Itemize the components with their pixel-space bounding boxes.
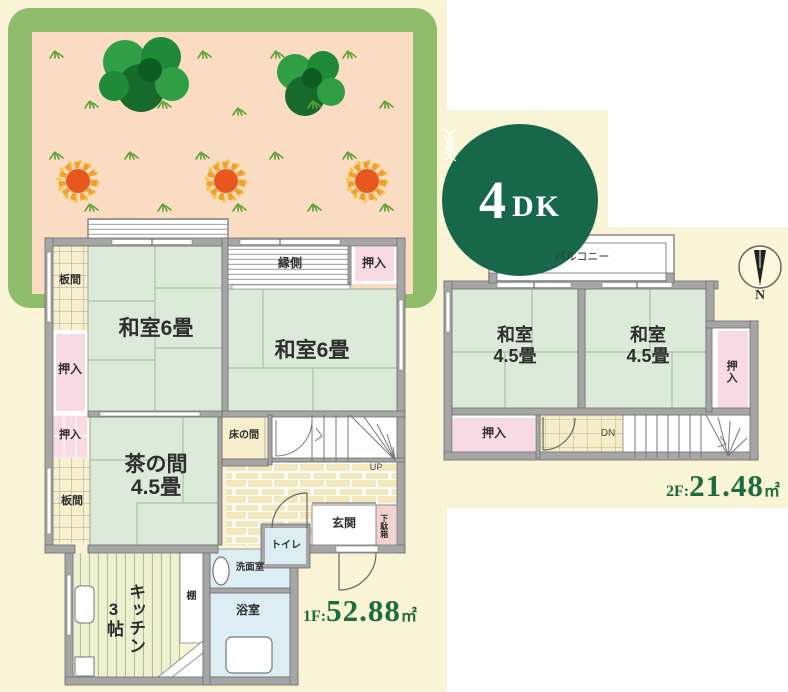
label-itanoma-bottom: 板間 xyxy=(50,495,94,507)
room-itanoma-top xyxy=(53,246,88,330)
label-oshiire-left-small: 押入 xyxy=(48,429,92,441)
label-genkan: 玄関 xyxy=(316,517,372,530)
label-washitsu6-left: 和室6畳 xyxy=(100,317,212,340)
flourish-right-icon xyxy=(442,124,458,166)
label-chanoma: 茶の間4.5畳 xyxy=(104,453,208,499)
label-oshiire-2f-bottom: 押入 xyxy=(462,427,526,440)
entrance-door-arc xyxy=(339,553,376,590)
stairs-2f xyxy=(623,415,750,458)
label-oshiire-top-right: 押入 xyxy=(352,257,396,270)
label-washitsu45-left: 和室4.5畳 xyxy=(463,325,567,367)
label-oshiire-left: 押入 xyxy=(48,363,92,376)
kitchen-sink-icon xyxy=(75,586,94,623)
washbasin-icon xyxy=(213,557,229,585)
label-oshiire-2f-right: 押入 xyxy=(725,352,737,392)
label-washroom: 洗面室 xyxy=(228,563,272,573)
label-washitsu45-right: 和室4.5畳 xyxy=(596,325,700,367)
label-bathroom: 浴室 xyxy=(222,604,274,617)
badge-suffix: DK xyxy=(512,178,561,222)
label-getabako: 下駄箱 xyxy=(379,508,388,544)
compass-icon xyxy=(739,246,781,288)
label-engawa: 縁側 xyxy=(260,257,320,270)
label-stairs-dn: DN xyxy=(594,428,622,439)
label-shelf: 棚 xyxy=(184,583,195,607)
label-tokonoma: 床の間 xyxy=(222,430,266,441)
label-toilet: トイレ xyxy=(264,540,308,551)
bathtub-icon xyxy=(226,637,272,673)
label-stairs-up: UP xyxy=(364,463,388,473)
floor2-area: 2F:21.48㎡ xyxy=(666,468,780,504)
floorplan-page: 4DK 板間 押入 押入 板間 和室6畳 和室6畳 縁側 押入 茶の間4.5畳 … xyxy=(0,0,788,692)
badge-number: 4 xyxy=(479,173,506,227)
floor1-area: 1F:52.88㎡ xyxy=(303,593,417,629)
stairs-1f xyxy=(272,415,397,462)
compass-north-label: N xyxy=(755,288,765,304)
label-balcony: バルコニー xyxy=(528,251,636,263)
label-kitchen: キッチン 3帖 xyxy=(102,564,146,674)
label-washitsu6-right: 和室6畳 xyxy=(256,339,368,362)
label-itanoma-top: 板間 xyxy=(48,274,92,286)
